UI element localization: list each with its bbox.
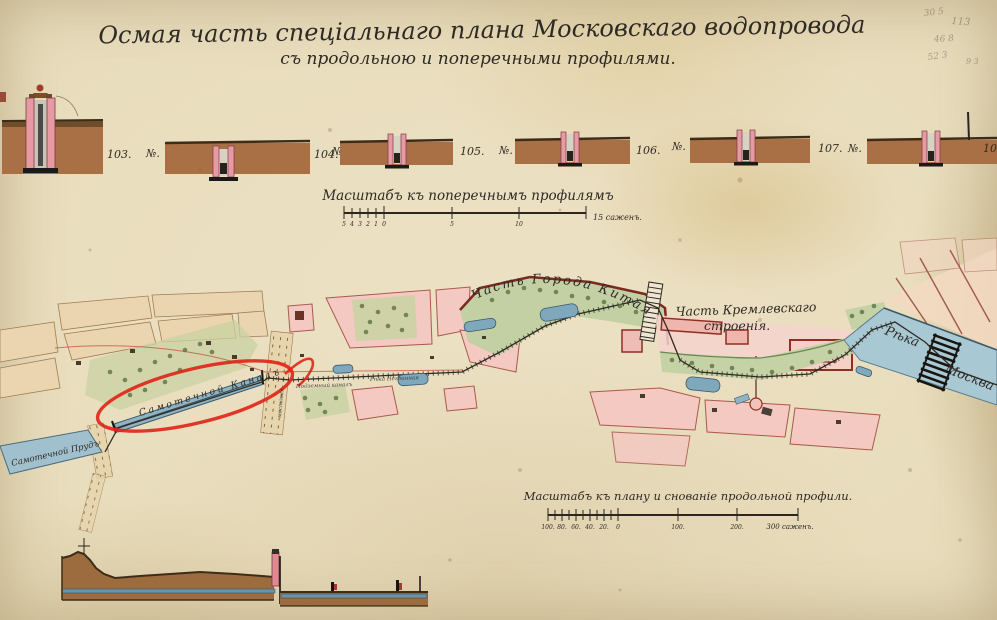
pencil-note: 30 5 bbox=[923, 7, 944, 19]
scale-tick-label: 5 bbox=[450, 221, 454, 228]
well-pipe-icon bbox=[394, 153, 400, 163]
survey-rod-icon bbox=[968, 112, 969, 140]
garden-block-center bbox=[352, 295, 417, 341]
gate-tower bbox=[622, 330, 642, 352]
corner-red-mark bbox=[0, 92, 6, 102]
shaft-wall-icon bbox=[213, 146, 219, 177]
scanned-map-sheet: Осмая часть спеціальнаго плана Московска… bbox=[0, 0, 997, 620]
shaft-wall-icon bbox=[47, 98, 55, 170]
sketch-line bbox=[56, 96, 78, 116]
scale-tick-label: 0 bbox=[382, 221, 386, 228]
conduit-water-line bbox=[62, 589, 275, 593]
well-pipe-icon bbox=[38, 104, 43, 166]
shaft-base bbox=[558, 163, 582, 167]
hatched-street-lower-left bbox=[79, 473, 106, 532]
scale-end-label: 15 саженъ. bbox=[593, 213, 642, 222]
well-pipe-icon bbox=[567, 151, 573, 161]
profile-107 bbox=[690, 130, 810, 166]
profile-number-103: 103. bbox=[107, 148, 132, 161]
scale-cross-profiles: Масштабъ къ поперечнымъ профилямъ 5 4 3 … bbox=[321, 188, 642, 228]
scale-tick-label: 3 bbox=[358, 221, 362, 228]
profile-number-106: 106. bbox=[636, 144, 661, 157]
ground-line bbox=[165, 141, 310, 143]
earth-block bbox=[165, 143, 310, 174]
shaft-base bbox=[919, 163, 943, 167]
scale-tick-label: 80. bbox=[557, 524, 567, 531]
title-line-1: Осмая часть спеціальнаго плана Московска… bbox=[98, 11, 865, 50]
scale-tick-label: 100. bbox=[541, 524, 554, 531]
profile-106 bbox=[515, 132, 630, 167]
pencil-note: 46 8 bbox=[933, 34, 955, 45]
number-sign: №. bbox=[847, 142, 862, 155]
drop-shaft-cap bbox=[272, 549, 279, 554]
scale-plan-title: Масштабъ къ плану и снованіе продольной … bbox=[523, 489, 853, 503]
longitudinal-profile bbox=[62, 538, 428, 606]
scale-tick-label: 10 bbox=[515, 221, 523, 228]
building-mark bbox=[295, 311, 304, 320]
number-sign: №. bbox=[498, 144, 513, 157]
shaft-wall-icon bbox=[737, 130, 742, 162]
shaft-base bbox=[385, 165, 409, 169]
profile-103 bbox=[2, 85, 103, 175]
number-sign: №. bbox=[671, 140, 686, 153]
scale-cross-title: Масштабъ къ поперечнымъ профилямъ bbox=[321, 188, 613, 204]
title-line-2: съ продольною и поперечными профилями. bbox=[280, 49, 676, 69]
profile-105 bbox=[340, 134, 453, 169]
shaft-wall-icon bbox=[401, 134, 406, 165]
scale-tick-label: 4 bbox=[349, 221, 354, 228]
shaft-wall-icon bbox=[228, 146, 234, 177]
profile-108 bbox=[867, 112, 997, 167]
shaft-wall-icon bbox=[561, 132, 566, 163]
pencil-note: 52 3 bbox=[927, 50, 949, 63]
profile-104 bbox=[165, 141, 310, 181]
profile-number-107: 107. bbox=[818, 142, 843, 155]
well-pipe-icon bbox=[743, 150, 749, 160]
scale-tick-label: 20. bbox=[598, 524, 609, 531]
label-kremlin-1: Часть Кремлевскаго bbox=[676, 299, 817, 319]
well-head-figure-icon bbox=[37, 85, 44, 92]
cross-profiles-row: 103. №. 104. №. 105. №. bbox=[2, 85, 997, 182]
shaft-base bbox=[734, 162, 758, 166]
shaft-wall-icon bbox=[750, 130, 755, 162]
shaft-wall-icon bbox=[26, 98, 34, 170]
well-pipe-icon bbox=[220, 163, 227, 174]
scale-tick-label: 2 bbox=[365, 221, 370, 228]
shaft-wall-icon bbox=[574, 132, 579, 163]
shaft-wall-icon bbox=[935, 131, 940, 163]
drop-shaft-marker bbox=[272, 552, 279, 586]
scale-tick-label: 0 bbox=[616, 524, 620, 531]
scale-tick-label: 200. bbox=[729, 524, 743, 531]
profile-number-108: 108 bbox=[983, 142, 997, 155]
scale-tick-label: 100. bbox=[671, 524, 684, 531]
scale-plan: Масштабъ къ плану и снованіе продольной … bbox=[523, 489, 853, 531]
scale-tick-label: 40. bbox=[584, 524, 595, 531]
pencil-note: 113 bbox=[951, 16, 971, 28]
pencil-note: 9 3 bbox=[966, 57, 979, 66]
well-pipe-icon bbox=[928, 151, 934, 161]
scale-tick-label: 5 bbox=[342, 221, 346, 228]
shaft-wall-icon bbox=[388, 134, 393, 165]
shaft-base bbox=[209, 177, 238, 181]
number-sign: №. bbox=[145, 147, 160, 160]
sheet-title: Осмая часть спеціальнаго плана Московска… bbox=[98, 11, 865, 69]
fountain-basin-icon bbox=[750, 398, 762, 410]
scale-tick-label: 1 bbox=[374, 221, 378, 228]
profile-marker-figures bbox=[331, 576, 420, 592]
shaft-base bbox=[23, 168, 58, 173]
city-blocks-lower bbox=[300, 384, 880, 466]
shaft-wall-icon bbox=[922, 131, 927, 163]
map-drawing: Осмая часть спеціальнаго плана Московска… bbox=[0, 0, 997, 620]
scale-end-label: 300 саженъ. bbox=[766, 523, 813, 531]
profile-number-105: 105. bbox=[460, 145, 485, 158]
pencil-scribbles: 30 5 113 46 8 52 3 9 3 bbox=[923, 7, 978, 66]
scale-tick-label: 60. bbox=[571, 524, 581, 531]
conduit-water-line-lower bbox=[281, 594, 427, 598]
